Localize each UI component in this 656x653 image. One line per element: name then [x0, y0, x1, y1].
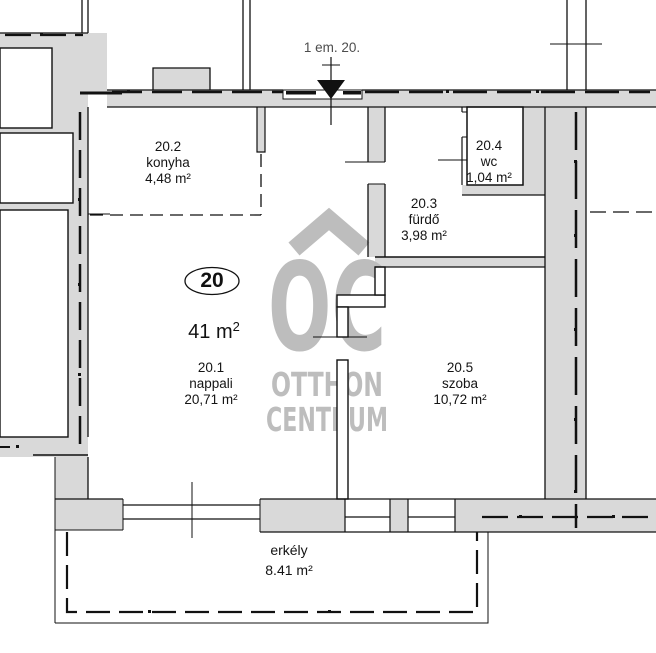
room-label-szoba: 20.5 szoba 10,72 m²: [433, 360, 486, 408]
room-id: 20.4: [466, 138, 512, 154]
watermark-oc: OC: [268, 237, 386, 379]
room-label-nappali: 20.1 nappali 20,71 m²: [184, 360, 237, 408]
room-id: 20.2: [145, 139, 191, 155]
plan-title: 1 em. 20.: [304, 40, 360, 55]
unit-number: 20: [200, 269, 223, 293]
entrance: [283, 57, 362, 125]
watermark-line2: CENTRUM: [266, 400, 388, 439]
room-id: 20.5: [433, 360, 486, 376]
total-area-sup: 2: [233, 319, 240, 334]
room-area: 4,48 m²: [145, 171, 191, 187]
room-label-furdo: 20.3 fürdő 3,98 m²: [401, 196, 447, 244]
total-area-value: 41 m: [188, 321, 232, 343]
room-area: 1,04 m²: [466, 170, 512, 186]
floor-plan: OC OTTHON CENTRUM: [0, 0, 656, 653]
balcony-area: 8.41 m²: [265, 561, 312, 581]
room-area: 20,71 m²: [184, 392, 237, 408]
room-label-konyha: 20.2 konyha 4,48 m²: [145, 139, 191, 187]
room-name: szoba: [433, 376, 486, 392]
room-name: nappali: [184, 376, 237, 392]
watermark-line1: OTTHON: [271, 365, 383, 404]
balcony-label: erkély 8.41 m²: [265, 541, 312, 580]
watermark-logo: OC OTTHON CENTRUM: [266, 219, 388, 439]
room-name: konyha: [145, 155, 191, 171]
room-area: 3,98 m²: [401, 228, 447, 244]
room-area: 10,72 m²: [433, 392, 486, 408]
room-label-wc: 20.4 wc 1,04 m²: [466, 138, 512, 186]
balcony-name: erkély: [265, 541, 312, 561]
room-name: wc: [466, 154, 512, 170]
plan-linework: OC OTTHON CENTRUM: [0, 0, 656, 653]
room-id: 20.3: [401, 196, 447, 212]
total-area-label: 41 m2: [188, 321, 240, 344]
room-id: 20.1: [184, 360, 237, 376]
room-name: fürdő: [401, 212, 447, 228]
